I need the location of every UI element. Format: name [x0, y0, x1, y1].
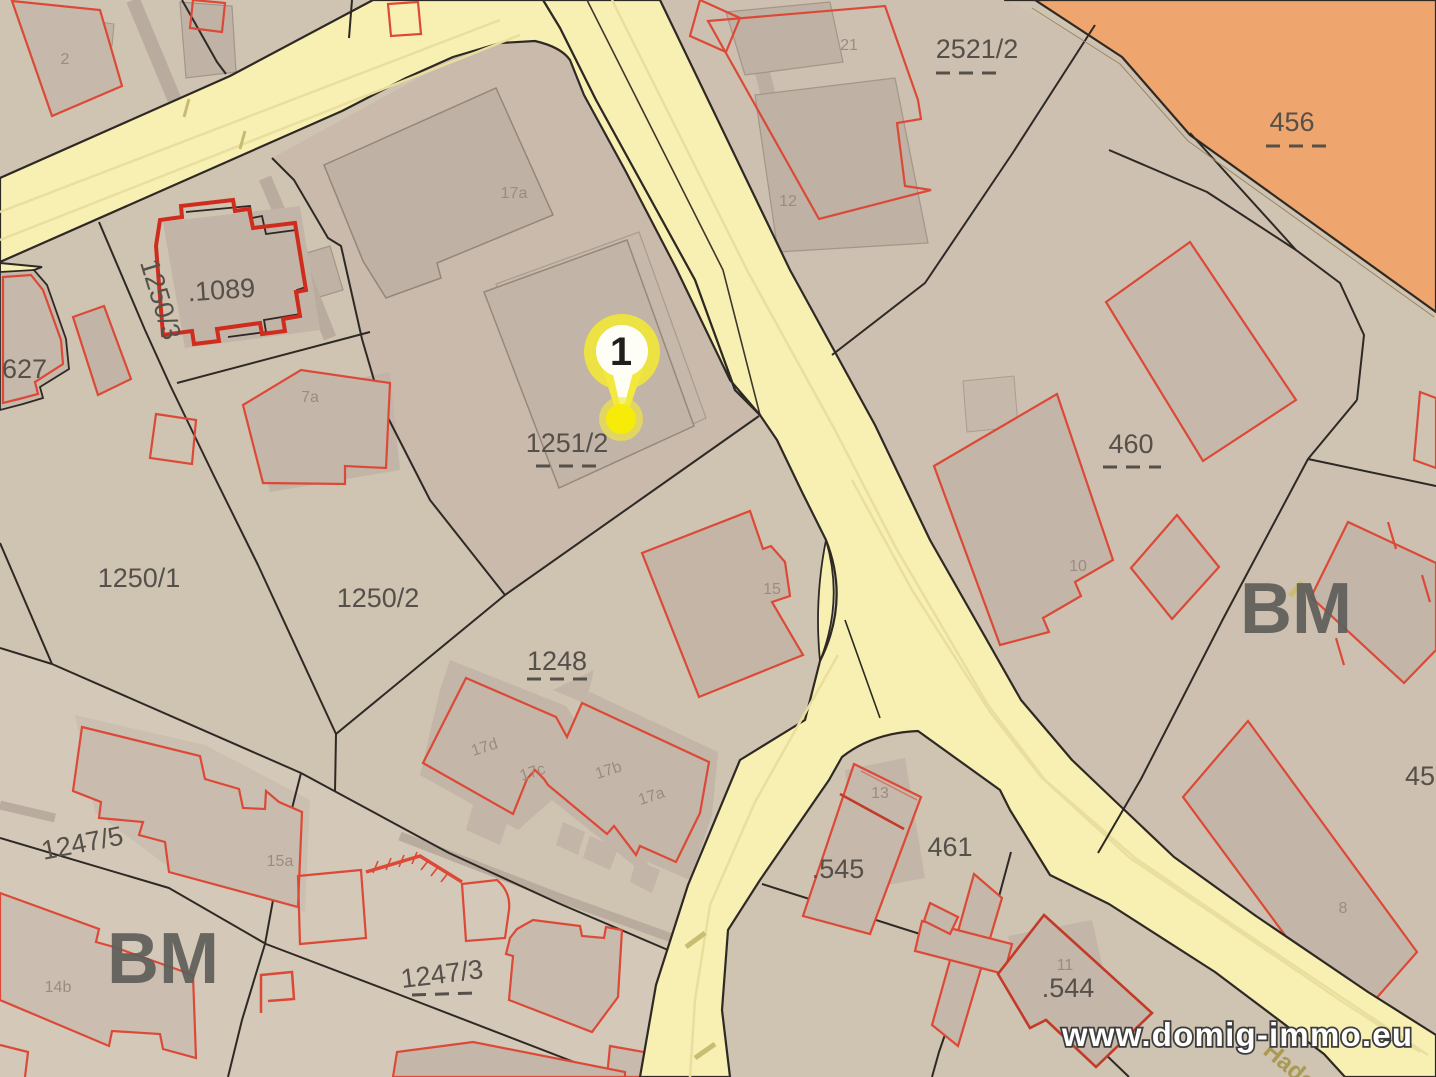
svg-text:.545: .545 [812, 854, 865, 884]
svg-text:7a: 7a [301, 389, 319, 406]
svg-text:8: 8 [1339, 900, 1348, 917]
svg-text:10: 10 [1069, 558, 1087, 575]
svg-text:45: 45 [1405, 761, 1435, 791]
svg-text:15a: 15a [267, 853, 294, 870]
svg-text:2: 2 [61, 51, 70, 68]
svg-text:.544: .544 [1042, 973, 1095, 1003]
svg-text:1248: 1248 [527, 646, 587, 676]
svg-text:460: 460 [1108, 429, 1153, 459]
svg-text:17a: 17a [501, 185, 528, 202]
svg-text:1251/2: 1251/2 [526, 428, 609, 458]
svg-text:1: 1 [610, 330, 632, 374]
svg-text:BM: BM [1240, 569, 1352, 649]
svg-text:BM: BM [107, 919, 219, 999]
svg-text:1250/2: 1250/2 [337, 583, 420, 613]
svg-text:1250/1: 1250/1 [98, 563, 181, 593]
svg-text:11: 11 [1057, 957, 1074, 974]
svg-text:14b: 14b [45, 979, 72, 996]
svg-text:2521/2: 2521/2 [936, 34, 1019, 64]
svg-text:12: 12 [779, 193, 797, 210]
svg-text:461: 461 [927, 832, 972, 862]
svg-text:627: 627 [2, 354, 47, 384]
svg-text:13: 13 [871, 785, 889, 802]
svg-text:21: 21 [840, 37, 858, 54]
svg-text:15: 15 [763, 581, 781, 598]
svg-text:www.domig-immo.eu: www.domig-immo.eu [1061, 1016, 1412, 1053]
svg-text:456: 456 [1269, 107, 1314, 137]
svg-text:.1089: .1089 [187, 273, 257, 308]
